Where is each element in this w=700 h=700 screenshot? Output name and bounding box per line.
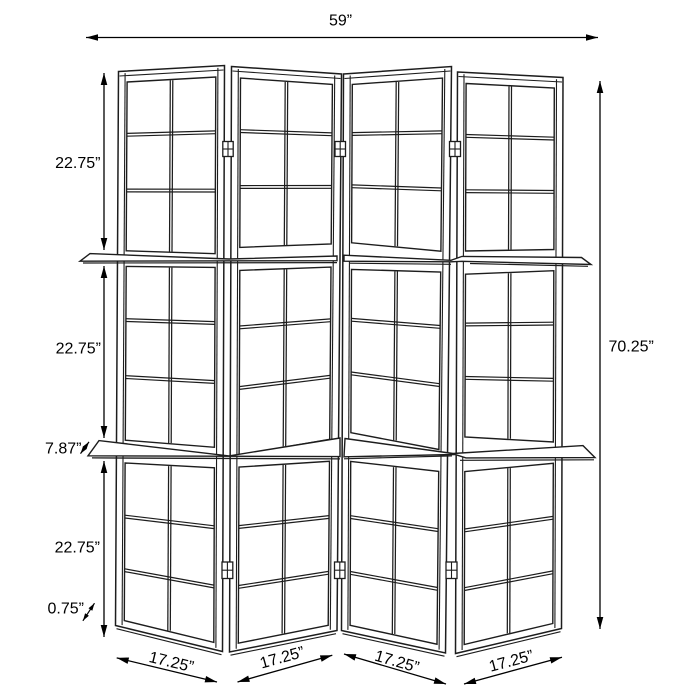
svg-text:0.75”: 0.75” (48, 601, 84, 618)
svg-text:59”: 59” (329, 13, 352, 30)
svg-text:17.25”: 17.25” (147, 649, 195, 676)
svg-text:7.87”: 7.87” (45, 440, 81, 457)
svg-text:17.25”: 17.25” (373, 648, 421, 677)
svg-text:22.75”: 22.75” (56, 341, 101, 358)
svg-text:70.25”: 70.25” (609, 339, 654, 356)
svg-text:22.75”: 22.75” (55, 539, 100, 556)
svg-text:22.75”: 22.75” (55, 155, 100, 172)
